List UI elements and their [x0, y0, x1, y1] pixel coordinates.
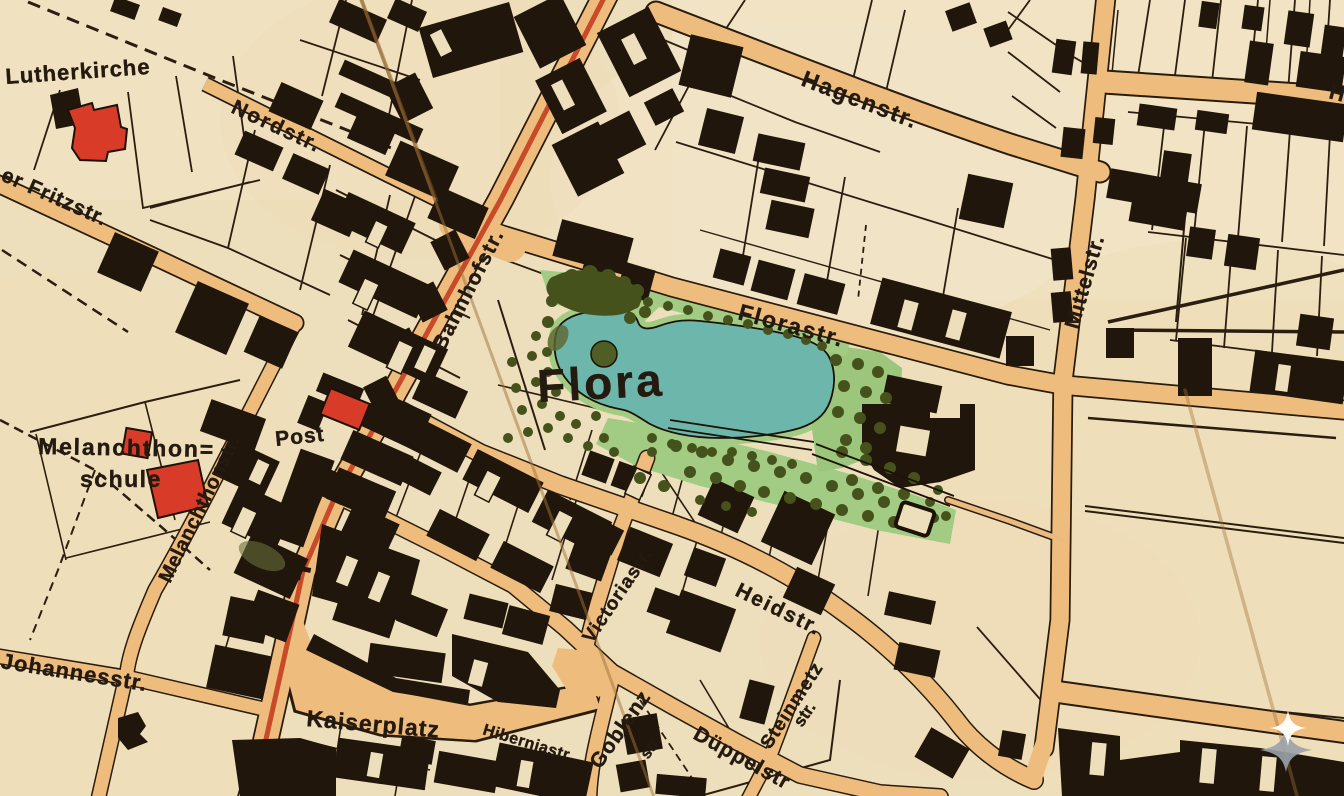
svg-text:Melanchthon=: Melanchthon=: [38, 433, 215, 462]
svg-text:schule: schule: [80, 466, 162, 492]
svg-text:Flora: Flora: [536, 353, 666, 412]
